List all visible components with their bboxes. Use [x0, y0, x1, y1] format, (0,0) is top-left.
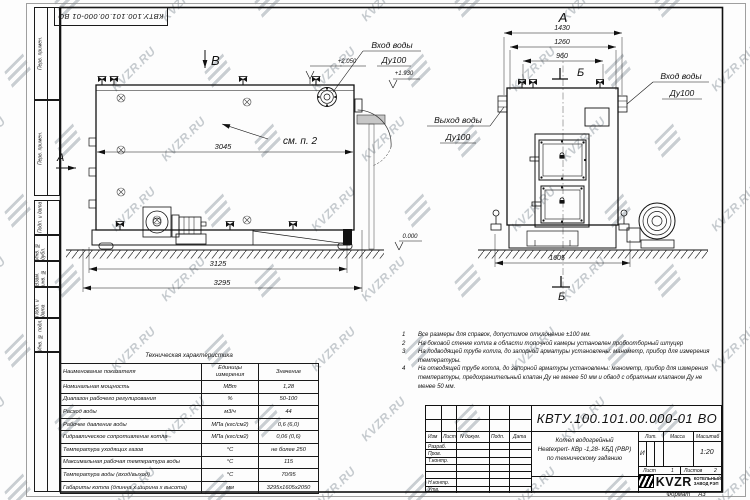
col-list: Лист	[443, 434, 456, 440]
title-block: КВТУ.100.101.00.000-01 ВО Изм Лист N док…	[425, 405, 722, 492]
row-units: °С	[202, 456, 259, 469]
row-units: м3/ч	[202, 406, 259, 419]
product-name-line2: Heatexpert- КВр -1,28- КБД (РВР)	[532, 445, 637, 454]
row-units: °С	[202, 469, 259, 482]
top-stamp-box: КВТУ.100.101.00.000-01 ВО	[54, 7, 168, 26]
margin-box-perv-primen-1: Перв. примен.	[34, 7, 60, 100]
table-header-row: Наименование показателя Единицы измерени…	[61, 364, 319, 381]
boiler-side-view	[89, 77, 391, 250]
blower-motor	[143, 207, 206, 244]
front-blower	[627, 203, 675, 248]
table-title: Техническая характеристика	[60, 352, 318, 363]
product-name-line1: Котел водогрейный	[532, 436, 637, 445]
table-row: Диапазон рабочего регулирования%50-100	[61, 393, 319, 406]
row-units: %	[202, 393, 259, 406]
top-stamp-text: КВТУ.100.101.00.000-01 ВО	[58, 12, 164, 21]
company-cell: KVZR КОТЕЛЬНЫЙ ЗАВОД РЭП	[638, 472, 721, 491]
row-nkontr: Н.контр.	[428, 480, 449, 486]
margin-box-podp-data-1: Подп. и дата	[34, 200, 60, 235]
note-text: На отводящей трубе котла, до запорной ар…	[418, 365, 714, 391]
format-label: Формат	[666, 492, 690, 498]
margin-label: Инв. № подл.	[35, 319, 46, 351]
inlet-label-right-view: Вход воды	[660, 71, 702, 81]
format-note: Формат А3	[650, 492, 722, 498]
kvzr-logo-icon	[638, 475, 654, 488]
scale-value: 1:20	[700, 449, 714, 456]
lit-value: И	[640, 450, 645, 457]
col-ndokum: N докум.	[460, 434, 480, 440]
margin-box-vzam-inv: Взам. инв. №	[34, 261, 60, 287]
col-data: Дата	[513, 434, 526, 440]
row-units: МВт	[202, 381, 259, 394]
table-row: Номинальная мощностьМВт1,28	[61, 381, 319, 394]
margin-label: Взам. инв. №	[35, 262, 46, 286]
company-name: КОТЕЛЬНЫЙ ЗАВОД РЭП	[694, 477, 721, 486]
level-2050: +2.050	[338, 59, 357, 65]
level-0000: 0.000	[402, 234, 418, 240]
margin-box-perv-primen-2: Перв. примен.	[34, 100, 60, 196]
lower-door	[532, 186, 584, 223]
dim-3045: 3045	[215, 142, 233, 151]
company-abbr: KVZR	[656, 475, 692, 489]
outlet-label: Выход воды	[434, 115, 483, 125]
row-units: °С	[202, 443, 259, 456]
table-row: Рабочее давление водыМПа (кгс/см2)0,6 (6…	[61, 418, 319, 431]
notes-list: 1Все размеры для справок, допустимое отк…	[402, 331, 714, 391]
dim-1430: 1430	[554, 25, 570, 32]
margin-label: Подп. и дата	[35, 201, 46, 234]
margin-label: Инв. № дубл.	[35, 236, 46, 260]
dim-1605: 1605	[549, 255, 565, 262]
tech-table: Наименование показателя Единицы измерени…	[60, 363, 319, 494]
note-text: Все размеры для справок, допустимое откл…	[418, 331, 714, 340]
row-name: Габариты котла (длинна х ширина х высота…	[61, 481, 202, 494]
note-number: 2	[402, 340, 418, 349]
mass-label: Масса	[670, 434, 685, 440]
note-text: На боковой стенке котла в области топочн…	[418, 340, 714, 349]
tech-characteristics: Техническая характеристика Наименование …	[60, 352, 318, 494]
row-name: Гидравлическое сопротивление котла	[61, 431, 202, 444]
margin-box-inv-podl: Инв. № подл.	[34, 318, 60, 352]
row-utv: Утв.	[428, 487, 439, 493]
col-izm: Изм	[428, 434, 437, 440]
row-value: 0,6 (6,0)	[259, 418, 319, 431]
section-label-b-top: Б	[577, 67, 584, 79]
row-tkontr: Т.контр.	[428, 458, 448, 464]
margin-box-inv-dubl: Инв. № дубл.	[34, 235, 60, 261]
row-name: Диапазон рабочего регулирования	[61, 393, 202, 406]
row-name: Расход воды	[61, 406, 202, 419]
row-value: 3295х1605х2050	[259, 481, 319, 494]
dim-3125: 3125	[210, 259, 228, 268]
drawing-sheet: KVZR.RUKVZR.RUKVZR.RUKVZR.RUKVZR.RUKVZR.…	[0, 0, 750, 500]
row-razrab: Разраб.	[428, 444, 446, 450]
row-value: 115	[259, 456, 319, 469]
row-prov: Пров.	[428, 451, 441, 457]
row-value: 50-100	[259, 393, 319, 406]
inlet-dn-right-view: Ду100	[669, 88, 695, 98]
company-line2: ЗАВОД РЭП	[694, 482, 721, 487]
lit-label: Лит.	[645, 434, 657, 440]
level-1930: +1.930	[395, 71, 414, 77]
note-item: 2На боковой стенке котла в области топоч…	[402, 340, 714, 349]
note-item: 4На отводящей трубе котла, до запорной а…	[402, 365, 714, 391]
row-units: мм	[202, 481, 259, 494]
upper-door	[530, 140, 586, 180]
table-row: Максимальная рабочая температура воды°С1…	[61, 456, 319, 469]
rear-pipe	[355, 99, 391, 249]
col-header-value: Значение	[259, 364, 319, 381]
row-name: Максимальная рабочая температура воды	[61, 456, 202, 469]
format-value: А3	[698, 492, 705, 498]
row-name: Температура воды (вход/выход)	[61, 469, 202, 482]
col-podp: Подп.	[491, 434, 504, 440]
margin-box-empty	[34, 352, 60, 492]
row-units: МПа (кгс/см2)	[202, 431, 259, 444]
dim-3295: 3295	[214, 278, 232, 287]
doc-number: КВТУ.100.101.00.000-01 ВО	[532, 408, 722, 429]
product-name: Котел водогрейный Heatexpert- КВр -1,28-…	[532, 433, 637, 476]
table-row: Расход водым3/ч44	[61, 406, 319, 419]
note-item: 1Все размеры для справок, допустимое отк…	[402, 331, 714, 340]
dim-1260: 1260	[554, 39, 570, 46]
table-row: Габариты котла (длинна х ширина х высота…	[61, 481, 319, 494]
margin-label: Подп. и дата	[35, 288, 46, 317]
outlet-dn: Ду100	[445, 132, 471, 142]
margin-label: Перв. примен.	[35, 101, 46, 195]
dim-960: 960	[556, 53, 568, 60]
note-item: 3На подводящей трубе котла, до запорной …	[402, 348, 714, 365]
note-number: 1	[402, 331, 418, 340]
left-view-dimensions	[83, 152, 362, 292]
row-name: Рабочее давление воды	[61, 418, 202, 431]
view-label-b: В	[211, 53, 220, 68]
margin-box-podp-data-2: Подп. и дата	[34, 287, 60, 318]
row-value: 1,28	[259, 381, 319, 394]
section-label-b-bottom: Б	[558, 291, 565, 303]
note-number: 3	[402, 348, 418, 365]
product-name-line3: по техническому заданию	[532, 454, 637, 463]
row-value: 44	[259, 406, 319, 419]
right-view-dimensions	[495, 33, 630, 267]
note-number: 4	[402, 365, 418, 391]
col-header-units: Единицы измерения	[202, 364, 259, 381]
row-name: Номинальная мощность	[61, 381, 202, 394]
see-note-label: см. п. 2	[283, 136, 317, 147]
note-text: На подводящей трубе котла, до запорной а…	[418, 348, 714, 365]
row-name: Температура уходящих газов	[61, 443, 202, 456]
row-value: 70/95	[259, 469, 319, 482]
inlet-label-left-view: Вход воды	[371, 40, 413, 50]
row-value: не более 250	[259, 443, 319, 456]
table-row: Температура воды (вход/выход)°С70/95	[61, 469, 319, 482]
margin-label: Перв. примен.	[35, 8, 46, 99]
row-value: 0,06 (0,6)	[259, 431, 319, 444]
inlet-dn-left-view: Ду100	[381, 55, 407, 65]
table-row: Гидравлическое сопротивление котлаМПа (к…	[61, 431, 319, 444]
scale-label: Масштаб	[696, 434, 719, 440]
col-header-name: Наименование показателя	[61, 364, 202, 381]
table-row: Температура уходящих газов°Сне более 250	[61, 443, 319, 456]
row-units: МПа (кгс/см2)	[202, 418, 259, 431]
view-label-a: А	[558, 10, 568, 25]
